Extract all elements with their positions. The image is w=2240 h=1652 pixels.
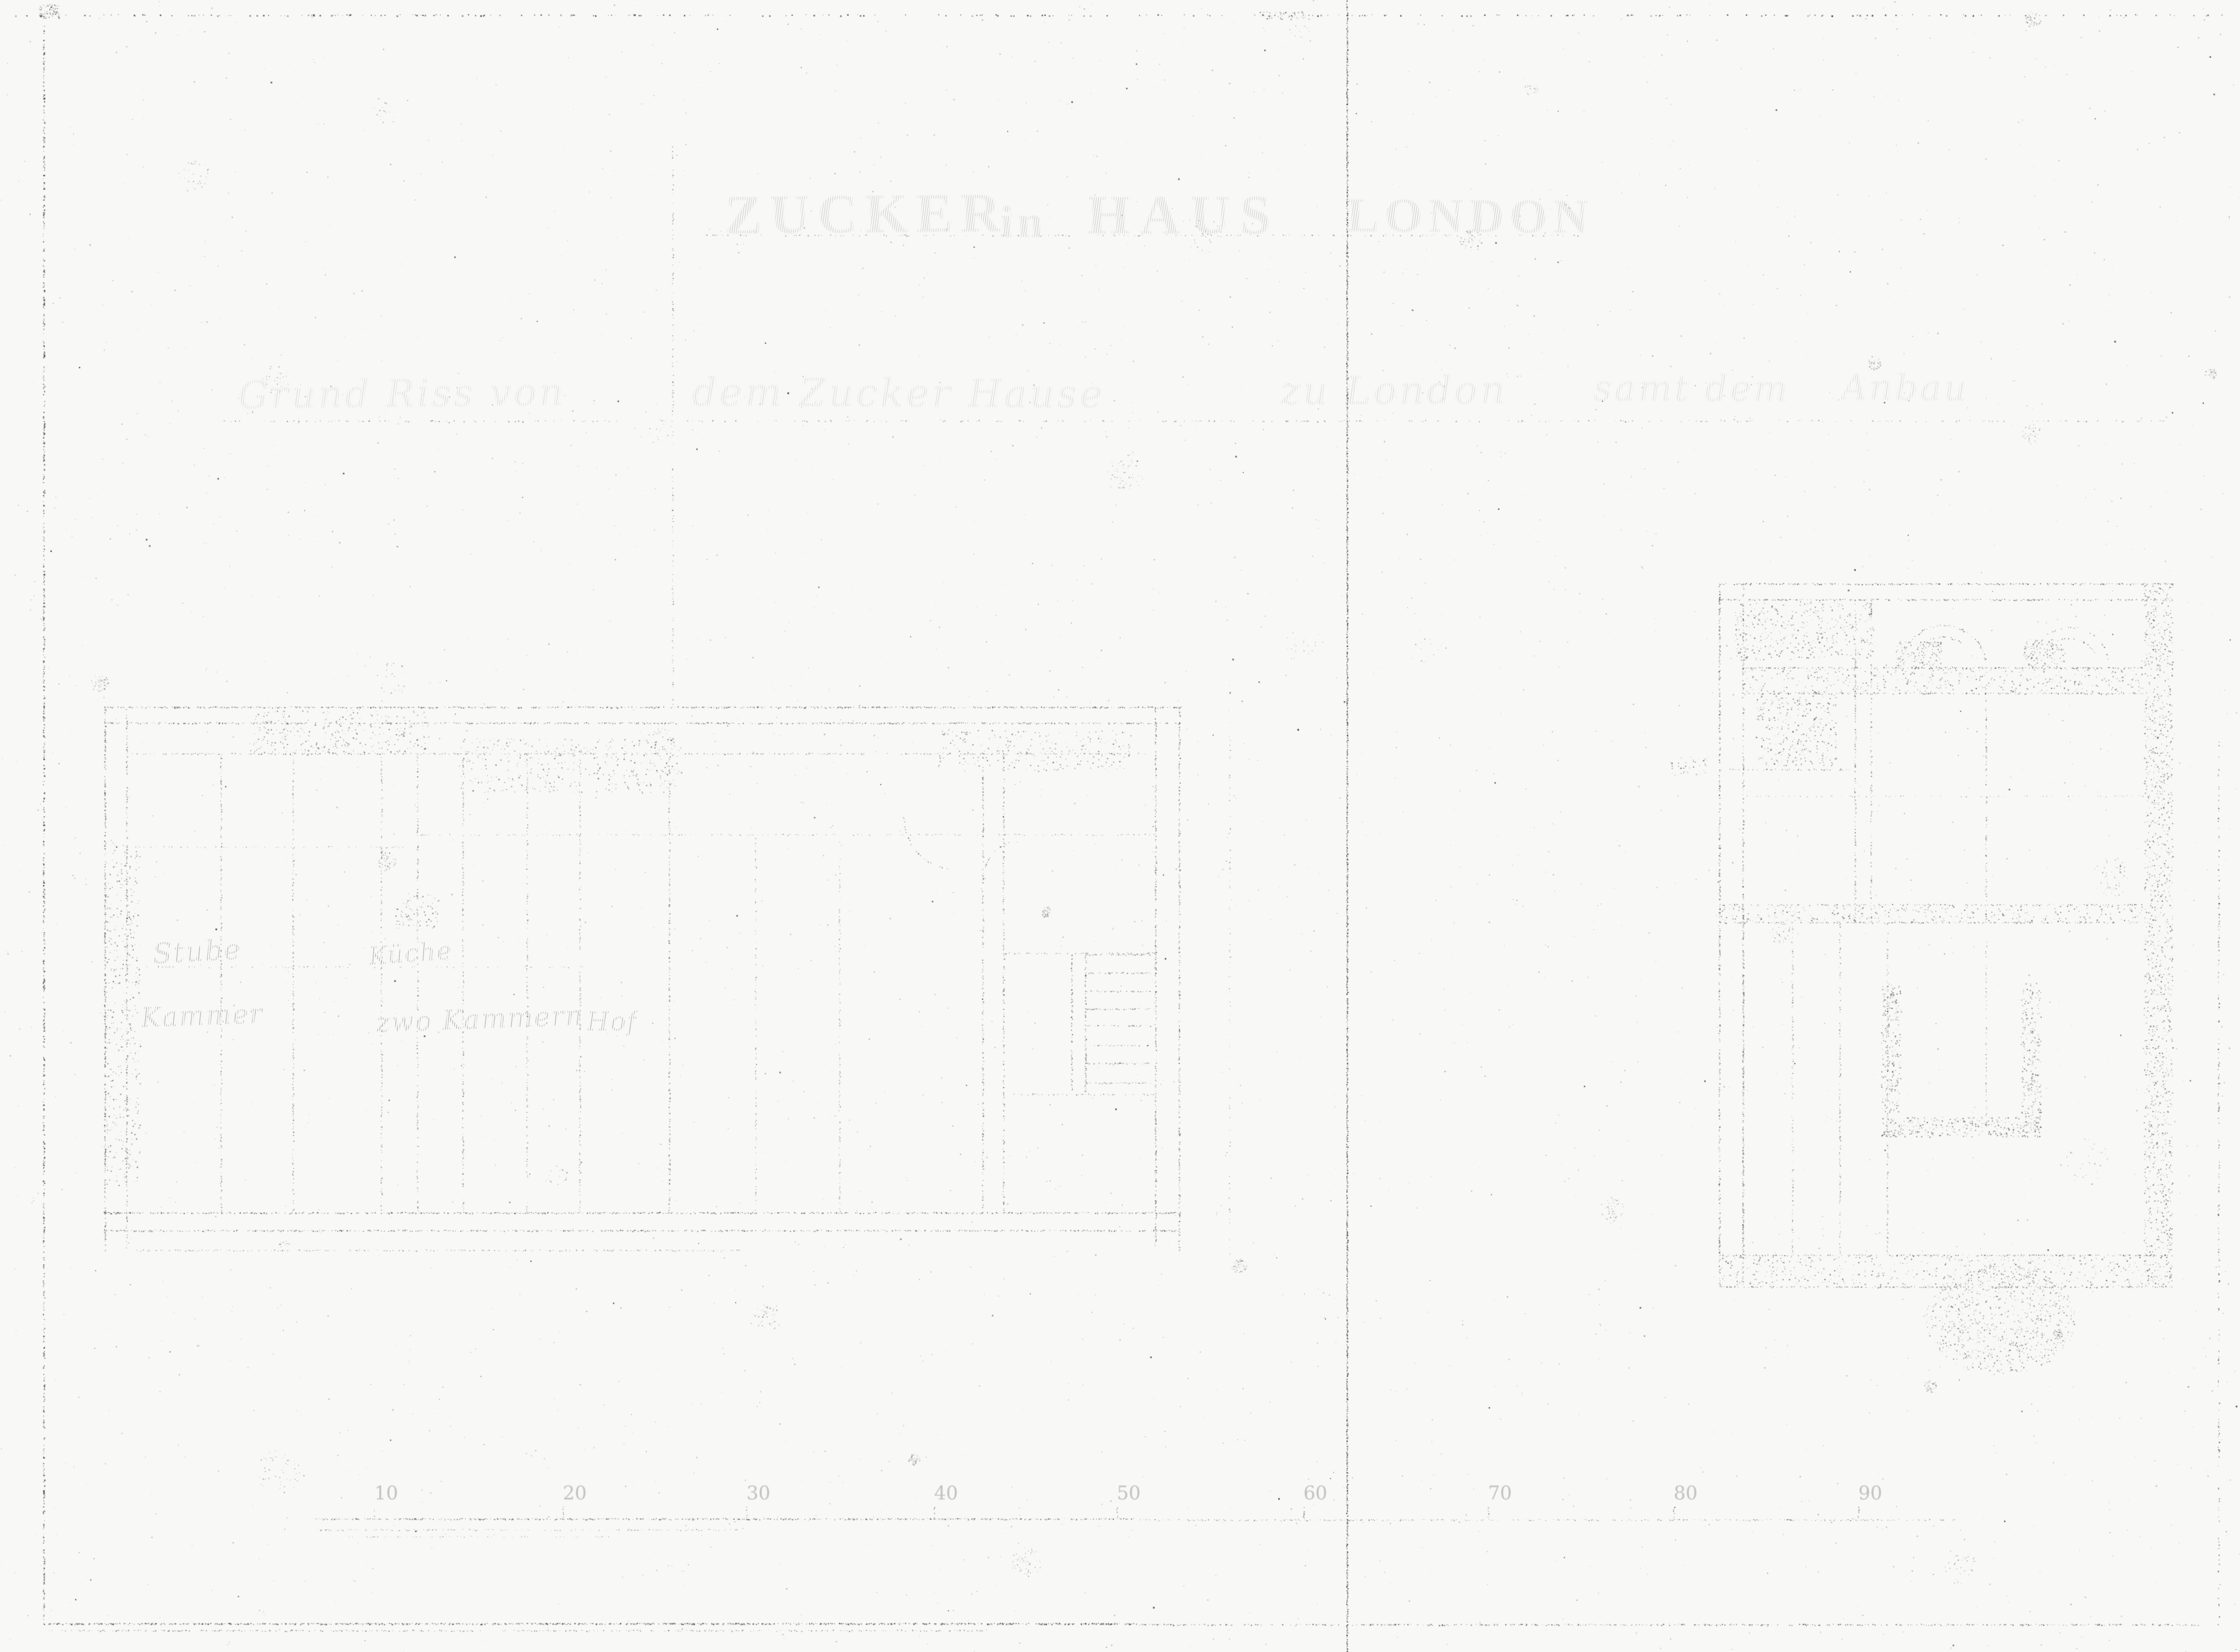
scanned-plan-sheet: ZUCKERinHAUSLONDON Grund Riss vondem Zuc… bbox=[0, 0, 2240, 1652]
plan-drawing-canvas bbox=[0, 0, 2240, 1652]
